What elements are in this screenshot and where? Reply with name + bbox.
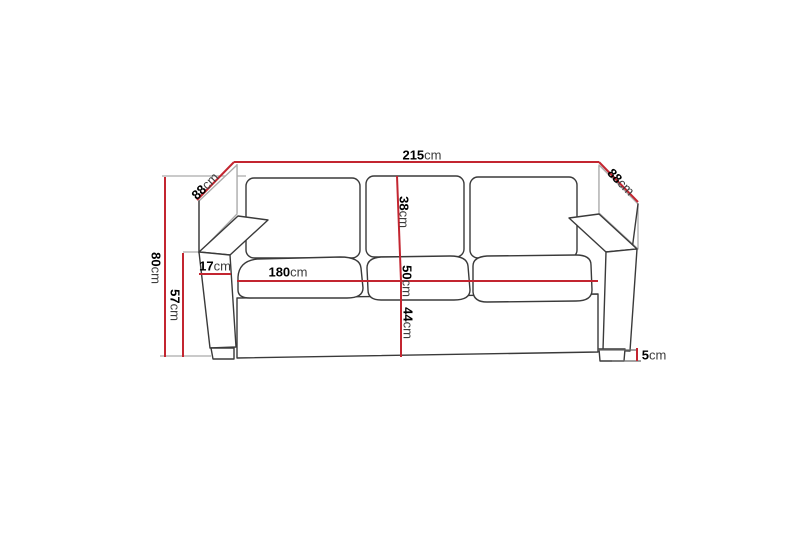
label-seat-height-value: 44 — [401, 307, 416, 321]
label-seat-width-unit: cm — [290, 265, 307, 280]
label-seat-width: 180cm — [268, 266, 307, 279]
label-overall-width: 215cm — [402, 149, 441, 162]
label-seat-depth: 50cm — [401, 265, 414, 297]
seat-cushion-right — [473, 255, 592, 302]
label-seat-height: 44cm — [402, 307, 415, 339]
armrest-right-front — [603, 249, 637, 351]
label-armrest-width-value: 17 — [199, 259, 213, 274]
label-leg-height-unit: cm — [649, 348, 666, 363]
sofa-dimension-diagram: 215cm 88cm 88cm 80cm 57cm 17cm 180cm 38c… — [0, 0, 800, 533]
leg-left — [211, 348, 234, 359]
label-leg-height: 5cm — [642, 349, 667, 362]
label-overall-width-value: 215 — [402, 148, 424, 163]
label-seat-height-unit: cm — [401, 322, 416, 339]
sofa-sketch — [199, 165, 638, 361]
label-armrest-height-unit: cm — [168, 304, 183, 321]
label-seat-depth-unit: cm — [400, 280, 415, 297]
label-back-cushion-height-value: 38 — [397, 196, 412, 210]
label-overall-height-value: 80 — [149, 252, 164, 266]
label-back-cushion-height: 38cm — [398, 196, 411, 228]
back-cushion-right — [470, 177, 577, 258]
label-overall-height: 80cm — [150, 252, 163, 284]
label-seat-width-value: 180 — [268, 265, 290, 280]
leg-right — [599, 349, 625, 361]
label-back-cushion-height-unit: cm — [397, 211, 412, 228]
label-armrest-width-unit: cm — [214, 259, 231, 274]
label-overall-width-unit: cm — [424, 148, 441, 163]
label-armrest-width: 17cm — [199, 260, 231, 273]
seat-base — [237, 294, 598, 358]
back-cushion-left — [246, 178, 360, 258]
label-seat-depth-value: 50 — [400, 265, 415, 279]
label-armrest-height-value: 57 — [168, 289, 183, 303]
label-overall-height-unit: cm — [149, 267, 164, 284]
back-cushion-middle — [366, 176, 464, 257]
label-armrest-height: 57cm — [169, 289, 182, 321]
seat-cushion-middle — [367, 256, 470, 300]
